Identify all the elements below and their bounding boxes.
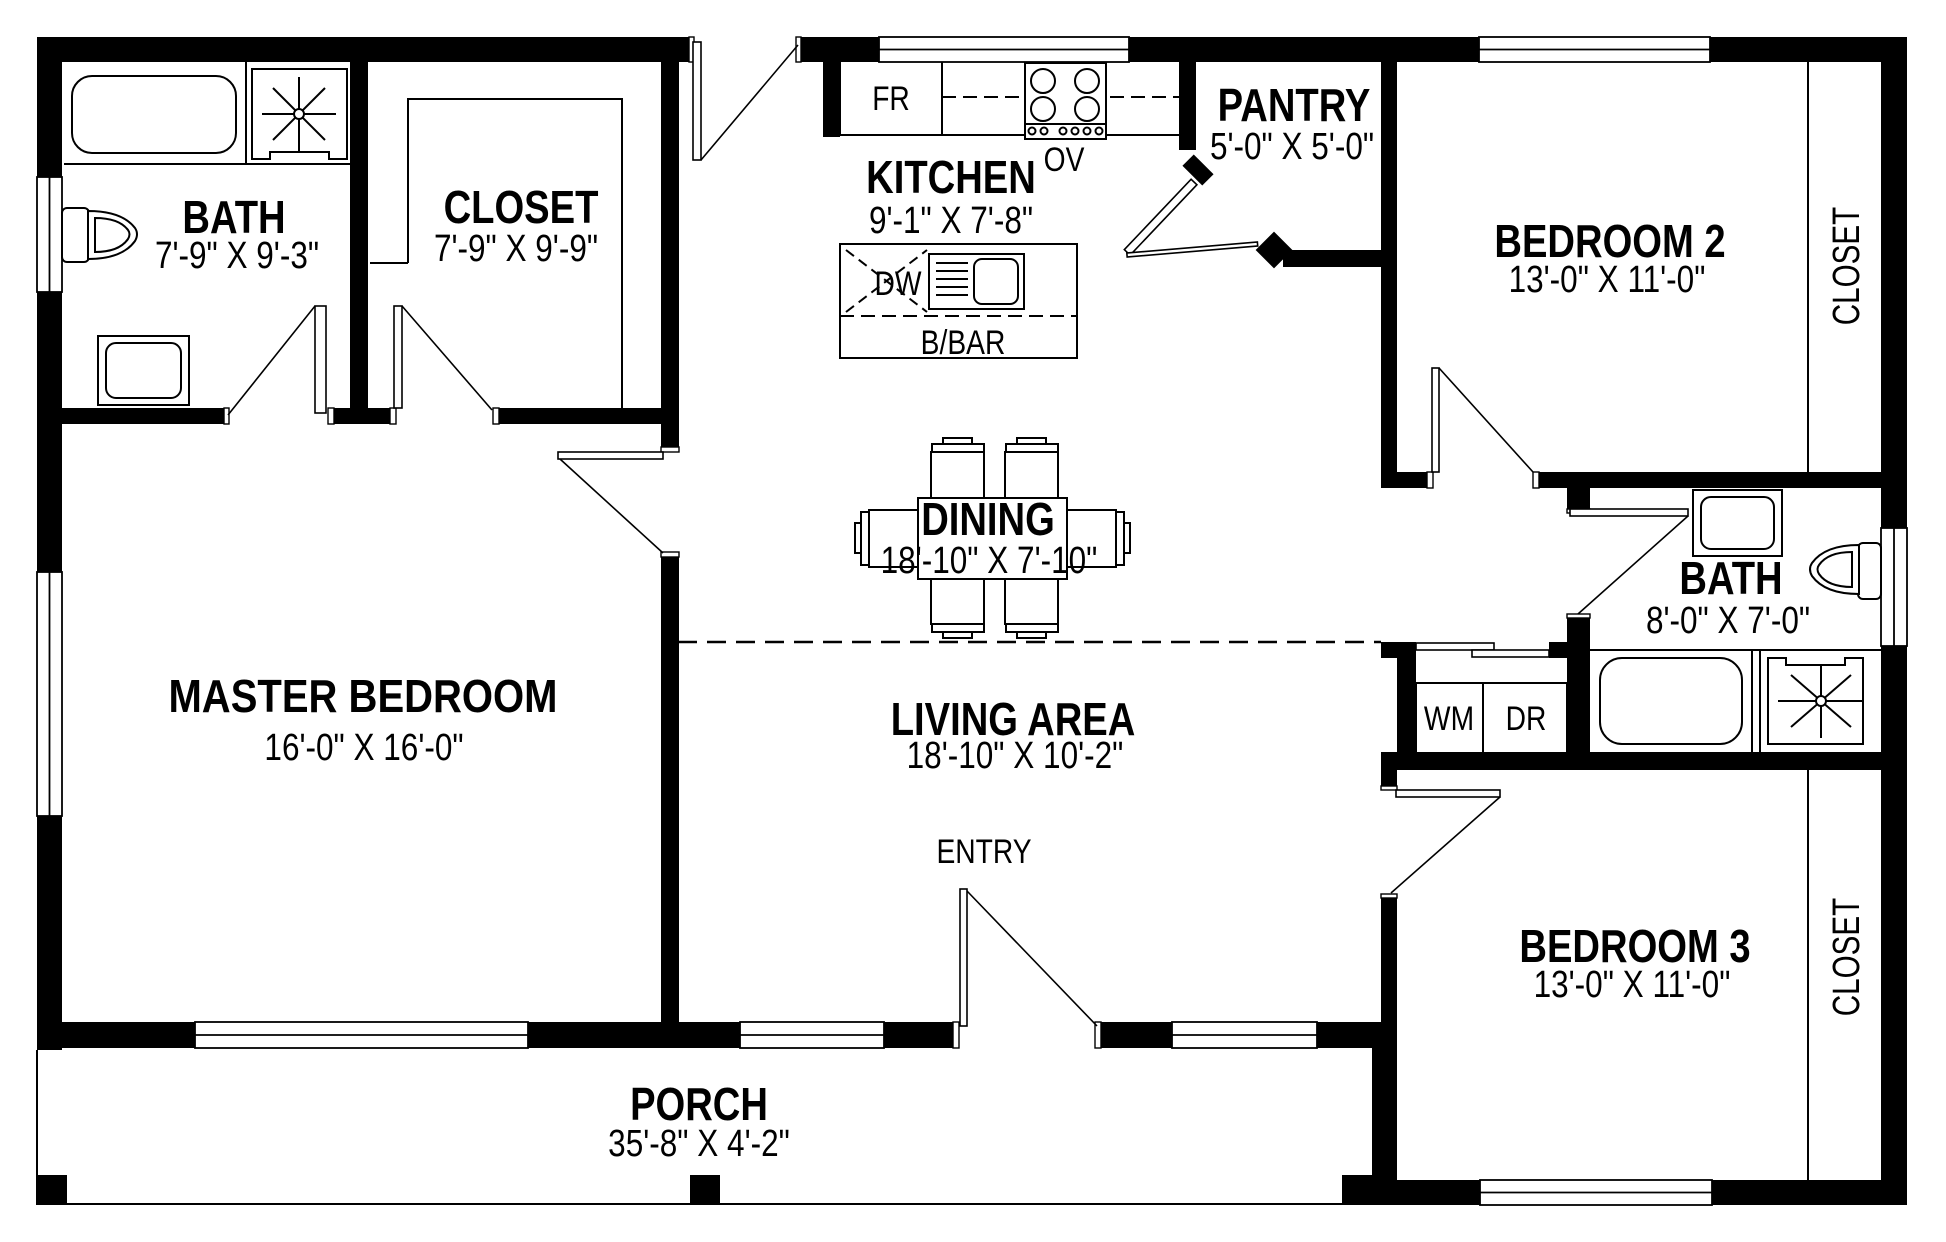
svg-text:CLOSET: CLOSET xyxy=(1826,207,1868,326)
svg-text:OV: OV xyxy=(1044,141,1085,179)
svg-text:DINING: DINING xyxy=(921,494,1055,545)
svg-text:9'-1" X 7'-8": 9'-1" X 7'-8" xyxy=(869,199,1033,241)
svg-text:WM: WM xyxy=(1424,700,1474,738)
svg-text:DR: DR xyxy=(1506,700,1547,738)
svg-text:FR: FR xyxy=(872,80,910,118)
svg-text:13'-0" X 11'-0": 13'-0" X 11'-0" xyxy=(1509,258,1706,300)
svg-text:7'-9" X 9'-9": 7'-9" X 9'-9" xyxy=(434,227,598,269)
svg-text:KITCHEN: KITCHEN xyxy=(866,152,1036,203)
svg-text:18'-10" X 10'-2": 18'-10" X 10'-2" xyxy=(907,734,1124,776)
svg-text:18'-10" X 7'-10": 18'-10" X 7'-10" xyxy=(881,539,1098,581)
svg-text:7'-9" X 9'-3": 7'-9" X 9'-3" xyxy=(155,234,319,276)
svg-text:13'-0" X 11'-0": 13'-0" X 11'-0" xyxy=(1534,963,1731,1005)
svg-text:B/BAR: B/BAR xyxy=(921,324,1006,362)
svg-text:MASTER BEDROOM: MASTER BEDROOM xyxy=(168,671,557,722)
svg-text:5'-0" X 5'-0": 5'-0" X 5'-0" xyxy=(1210,125,1374,167)
svg-text:35'-8" X 4'-2": 35'-8" X 4'-2" xyxy=(608,1122,790,1164)
svg-text:16'-0" X 16'-0": 16'-0" X 16'-0" xyxy=(264,726,463,768)
svg-text:PANTRY: PANTRY xyxy=(1218,80,1371,131)
svg-text:8'-0" X 7'-0": 8'-0" X 7'-0" xyxy=(1646,599,1810,641)
svg-text:CLOSET: CLOSET xyxy=(444,182,599,233)
svg-text:BATH: BATH xyxy=(1679,553,1782,604)
svg-text:ENTRY: ENTRY xyxy=(936,833,1031,871)
svg-text:DW: DW xyxy=(874,265,921,303)
svg-text:CLOSET: CLOSET xyxy=(1826,898,1868,1017)
